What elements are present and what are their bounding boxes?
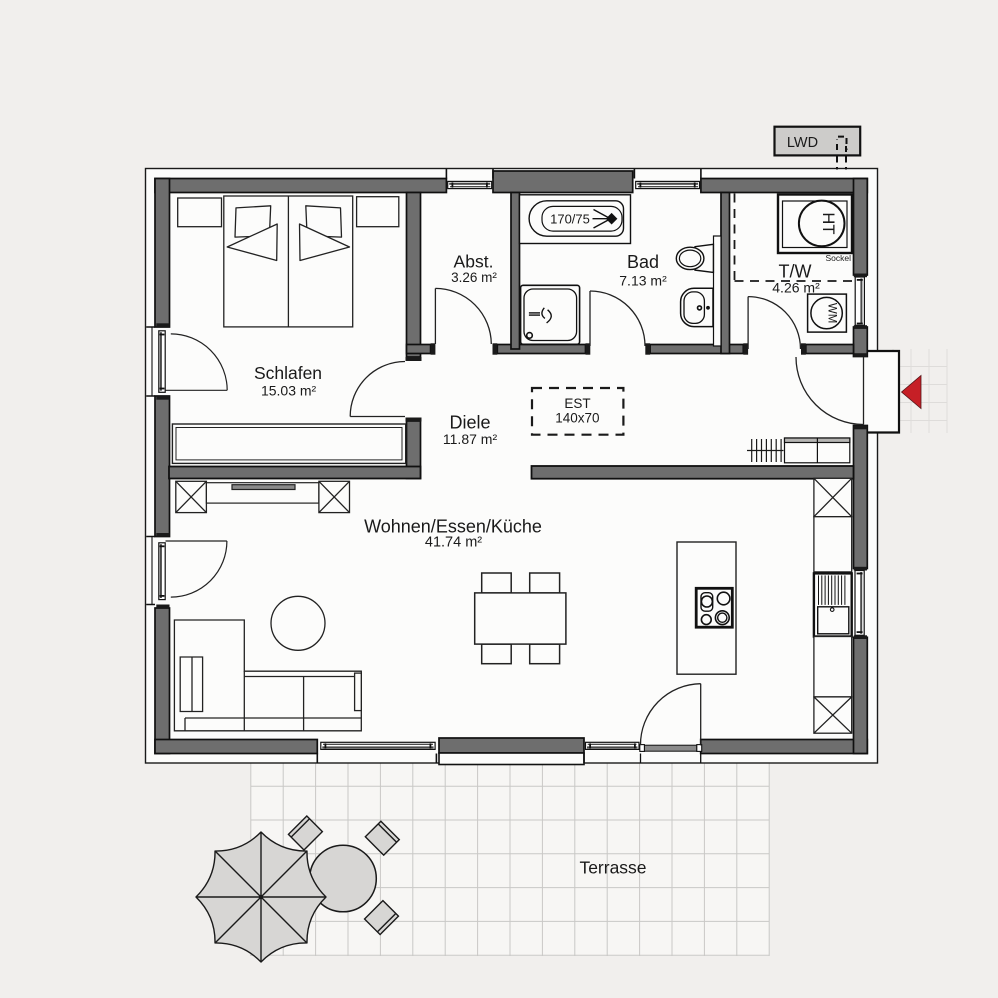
svg-text:15.03 m²: 15.03 m²: [261, 383, 317, 399]
svg-text:T/W: T/W: [779, 262, 812, 282]
svg-text:3.26 m²: 3.26 m²: [451, 270, 497, 285]
svg-text:EST: EST: [564, 396, 590, 411]
svg-text:Schlafen: Schlafen: [254, 363, 322, 383]
svg-text:Abst.: Abst.: [454, 252, 494, 272]
svg-text:41.74 m²: 41.74 m²: [425, 535, 482, 551]
svg-text:140x70: 140x70: [555, 411, 599, 426]
svg-text:Bad: Bad: [627, 252, 659, 272]
svg-text:Sockel: Sockel: [825, 253, 851, 263]
svg-text:170/75: 170/75: [550, 212, 590, 227]
svg-text:11.87 m²: 11.87 m²: [443, 431, 498, 447]
svg-text:4.26 m²: 4.26 m²: [772, 280, 820, 296]
svg-text:Diele: Diele: [449, 413, 490, 433]
svg-text:LWD: LWD: [787, 135, 818, 151]
svg-text:7.13 m²: 7.13 m²: [619, 273, 667, 289]
svg-text:HT: HT: [819, 212, 837, 234]
svg-text:Terrasse: Terrasse: [579, 858, 646, 878]
svg-text:Wohnen/Essen/Küche: Wohnen/Essen/Küche: [364, 517, 542, 537]
svg-text:WM: WM: [825, 303, 837, 323]
